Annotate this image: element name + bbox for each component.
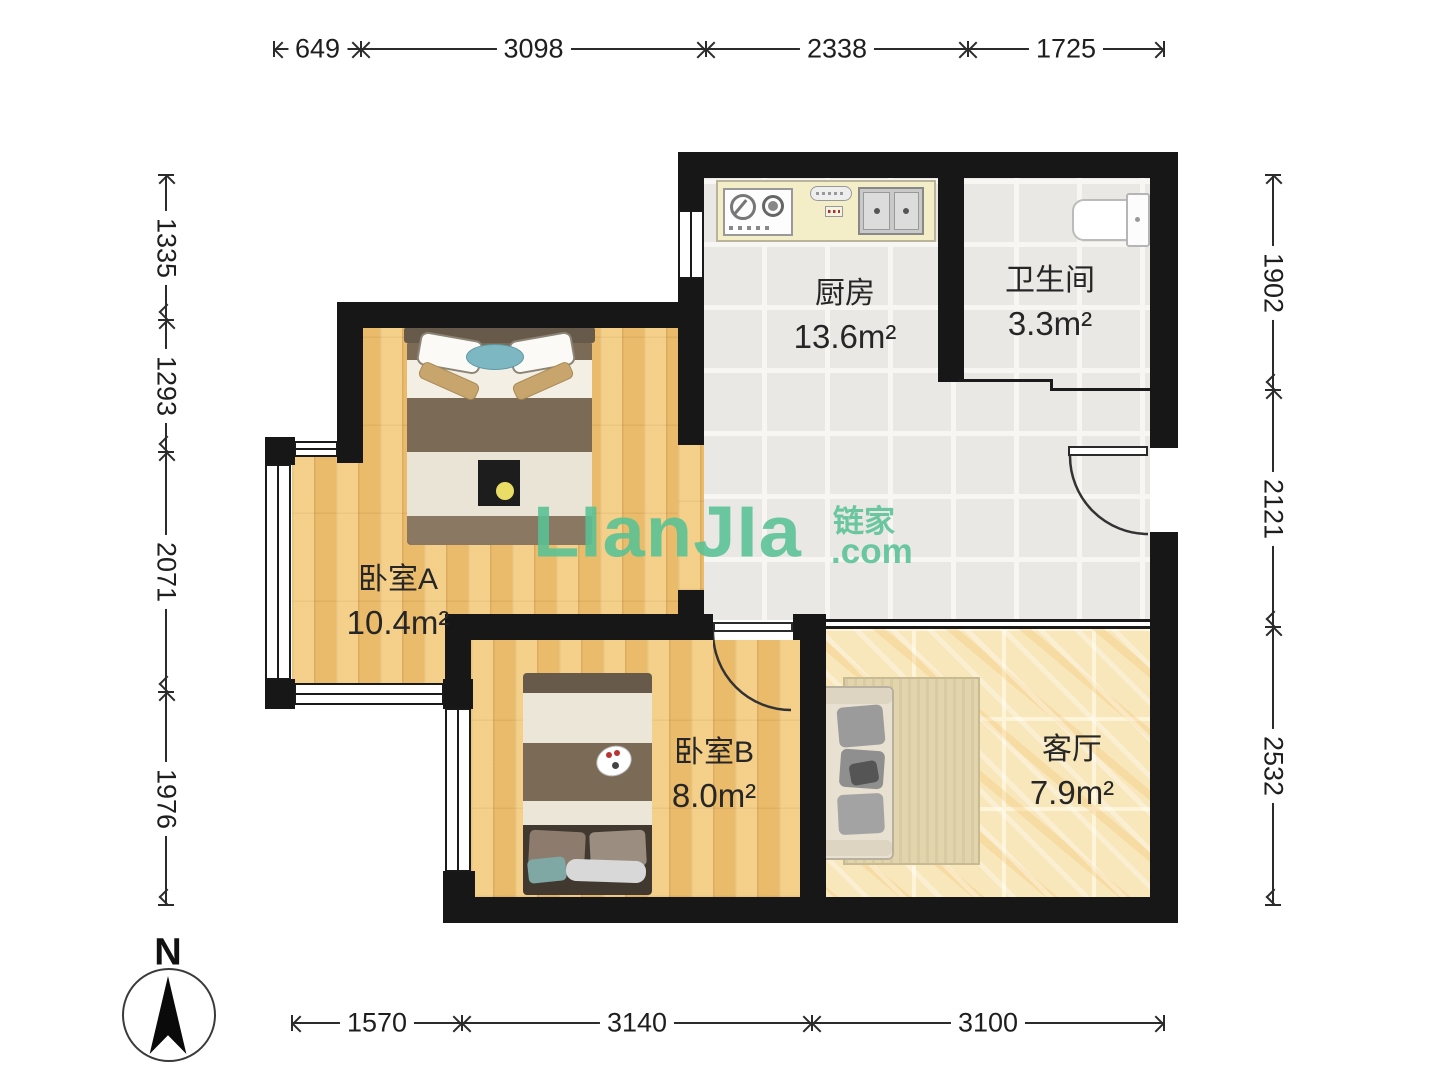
dims-top: 649309823381725 <box>0 34 1440 64</box>
bed-b-tray-dot <box>606 752 612 758</box>
dim-arrow-icon <box>361 42 378 59</box>
dim-arrow-icon <box>159 889 176 906</box>
dim-segment: 3098 <box>361 34 706 64</box>
dim-arrow-icon <box>952 42 969 59</box>
bed-b-tray-dot <box>612 762 619 769</box>
dim-arrow-icon <box>1266 889 1283 906</box>
bed-b-tray-dot <box>614 750 620 756</box>
dims-right: 190221212532 <box>1258 0 1288 1080</box>
dim-segment: 1293 <box>151 320 181 452</box>
dim-arrow-icon <box>462 1016 479 1033</box>
wall-bath-divider <box>938 152 964 382</box>
toilet-button <box>1135 217 1140 222</box>
dim-arrow-icon <box>1266 374 1283 391</box>
bed-b-top <box>523 673 652 693</box>
wall-bedroom-a-left <box>337 302 363 463</box>
dim-label: 2532 <box>1258 729 1289 803</box>
dim-segment: 1570 <box>292 1008 462 1038</box>
dim-arrow-icon <box>1148 42 1165 59</box>
dim-segment: 2121 <box>1258 390 1288 627</box>
dim-label: 649 <box>288 34 347 65</box>
dim-arrow-icon <box>292 1016 309 1033</box>
dim-segment: 3100 <box>812 1008 1164 1038</box>
room-name: 卧室A <box>347 559 450 601</box>
dim-label: 2338 <box>800 34 874 65</box>
dim-arrow-icon <box>159 692 176 709</box>
dim-segment: 1902 <box>1258 175 1288 390</box>
sink-drain <box>874 208 880 214</box>
room-name: 卧室B <box>672 732 756 774</box>
wall-top <box>678 152 1178 178</box>
dim-segment: 1976 <box>151 692 181 905</box>
bed-b-band2 <box>523 801 652 825</box>
room-area: 8.0m² <box>672 774 756 818</box>
wall-bedroom-b-right <box>800 614 826 897</box>
range-hood-dots <box>816 192 846 195</box>
room-label-bathroom: 卫生间 3.3m² <box>1005 260 1095 346</box>
dims-bottom: 157031403100 <box>0 1008 1440 1038</box>
room-label-kitchen: 厨房 13.6m² <box>794 273 897 359</box>
bed-b-teal-pillow <box>527 856 567 884</box>
dim-label: 3140 <box>600 1008 674 1039</box>
entry-door-swing-arc <box>1068 452 1152 536</box>
dim-segment: 2338 <box>706 34 968 64</box>
dim-arrow-icon <box>159 175 176 192</box>
toilet-bowl <box>1072 199 1130 241</box>
dim-label: 3098 <box>496 34 570 65</box>
dim-segment: 2532 <box>1258 627 1288 905</box>
bedroom-b-door-swing-arc <box>713 628 795 712</box>
room-label-bedroom-a: 卧室A 10.4m² <box>347 559 450 645</box>
room-label-living: 客厅 7.9m² <box>1030 729 1114 815</box>
dim-arrow-icon <box>1266 390 1283 407</box>
bathroom-threshold <box>958 379 1053 382</box>
wall-bedroom-b-top <box>445 614 713 640</box>
dim-label: 1725 <box>1029 34 1103 65</box>
wall-bottom <box>443 897 1178 923</box>
room-label-bedroom-b: 卧室B 8.0m² <box>672 732 756 818</box>
sink-drain <box>903 208 909 214</box>
dim-label: 1902 <box>1258 245 1289 319</box>
room-name: 厨房 <box>794 273 897 315</box>
bay-post <box>265 437 295 465</box>
dim-arrow-icon <box>159 676 176 693</box>
bed-a-tray-item <box>496 482 514 500</box>
bathroom-threshold <box>1050 388 1150 391</box>
dim-label: 3100 <box>951 1008 1025 1039</box>
dim-arrow-icon <box>446 1016 463 1033</box>
dim-arrow-icon <box>1266 627 1283 644</box>
dim-arrow-icon <box>159 320 176 337</box>
hood-switch-dots <box>828 210 840 213</box>
dim-arrow-icon <box>1148 1016 1165 1033</box>
room-area: 13.6m² <box>794 315 897 359</box>
bed-b-mid <box>523 743 652 801</box>
living-room-boundary-line <box>826 619 1150 622</box>
wall-bedroom-a-right <box>678 328 704 445</box>
dim-arrow-icon <box>159 436 176 453</box>
wall-bedroom-a-door-jamb <box>678 590 704 616</box>
room-area: 7.9m² <box>1030 771 1114 815</box>
dim-arrow-icon <box>345 42 362 59</box>
dim-arrow-icon <box>968 42 985 59</box>
room-area: 10.4m² <box>347 601 450 645</box>
dim-label: 1570 <box>340 1008 414 1039</box>
dim-arrow-icon <box>1266 611 1283 628</box>
room-area: 3.3m² <box>1005 302 1095 346</box>
dim-label: 2121 <box>1258 471 1289 545</box>
room-name: 客厅 <box>1030 729 1114 771</box>
bay-post <box>443 679 473 709</box>
dim-arrow-icon <box>796 1016 813 1033</box>
window-bay-a-top <box>294 441 338 457</box>
dim-arrow-icon <box>159 304 176 321</box>
sofa-armrest-top <box>820 688 892 704</box>
window-bay-a-left <box>265 464 291 680</box>
dim-segment: 1335 <box>151 175 181 320</box>
floorplan-canvas: 厨房 13.6m² 卫生间 3.3m² 卧室A 10.4m² 卧室B 8.0m²… <box>0 0 1440 1080</box>
watermark-logo: LIanJIa <box>533 491 802 574</box>
wall-right-upper <box>1150 152 1178 448</box>
dim-segment: 649 <box>274 34 361 64</box>
dim-arrow-icon <box>812 1016 829 1033</box>
room-name: 卫生间 <box>1005 260 1095 302</box>
bed-a-neck-pillow <box>466 344 524 370</box>
dim-arrow-icon <box>706 42 723 59</box>
dim-label: 1976 <box>151 761 182 835</box>
window-bedroom-b-left <box>445 708 471 872</box>
wall-bedroom-b-left-stub <box>445 640 471 682</box>
sofa-cushion <box>837 793 885 835</box>
dims-left: 1335129320711976 <box>151 0 181 1080</box>
wall-kitchen-left-a <box>678 152 704 210</box>
stove-knobs <box>729 226 769 230</box>
dim-arrow-icon <box>1266 175 1283 192</box>
dim-label: 1293 <box>151 349 182 423</box>
bed-b-long-pillow <box>566 859 647 884</box>
wall-right-lower <box>1150 532 1178 923</box>
dim-label: 1335 <box>151 210 182 284</box>
bay-post <box>443 871 475 923</box>
bay-post <box>265 679 295 709</box>
outside-mask <box>288 320 337 441</box>
window-bay-a-bottom <box>294 683 444 705</box>
dim-segment: 2071 <box>151 452 181 692</box>
sofa-cushion <box>836 704 885 748</box>
bed-b-band <box>523 693 652 743</box>
dim-arrow-icon <box>690 42 707 59</box>
dim-segment: 1725 <box>968 34 1164 64</box>
dim-arrow-icon <box>159 452 176 469</box>
stove-burner-inner <box>768 201 778 211</box>
watermark-com: .com <box>831 532 913 572</box>
window-kitchen-left <box>678 210 704 279</box>
living-room-boundary-line <box>826 626 1150 629</box>
stove-burner <box>730 194 756 220</box>
dim-label: 2071 <box>151 535 182 609</box>
wall-bedroom-a-top <box>337 302 704 328</box>
dim-segment: 3140 <box>462 1008 812 1038</box>
sofa-armrest-bottom <box>820 840 892 856</box>
